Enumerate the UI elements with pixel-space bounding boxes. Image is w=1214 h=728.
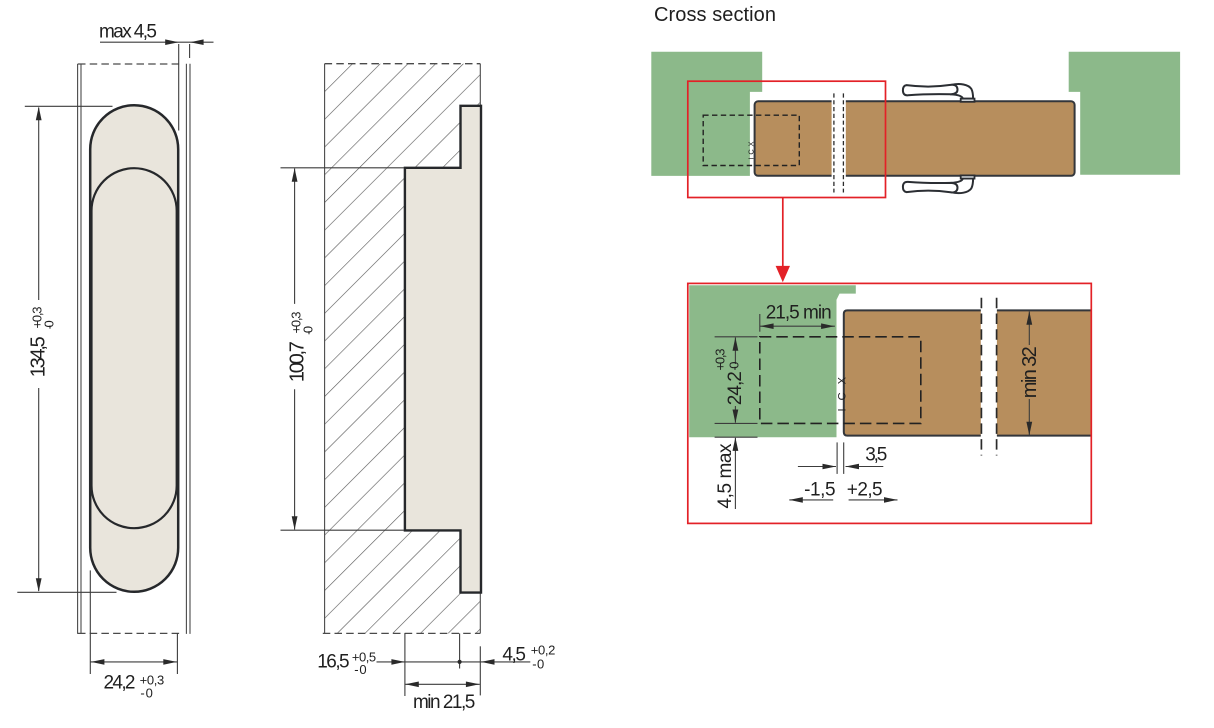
svg-text:-0: -0 xyxy=(301,326,316,335)
svg-text:Cross section: Cross section xyxy=(654,4,776,26)
svg-text:+2,5: +2,5 xyxy=(847,479,883,500)
svg-text:min 32: min 32 xyxy=(1019,346,1041,398)
svg-text:-0: -0 xyxy=(42,320,57,329)
svg-text:-0: -0 xyxy=(532,656,544,671)
svg-text:-0: -0 xyxy=(140,686,152,701)
svg-text:min 21,5: min 21,5 xyxy=(413,692,475,713)
svg-text:3,5: 3,5 xyxy=(865,444,887,465)
svg-text:134,5: 134,5 xyxy=(28,336,50,377)
svg-text:24,2: 24,2 xyxy=(104,673,136,694)
svg-text:+0,3: +0,3 xyxy=(713,349,728,371)
svg-text:24,2: 24,2 xyxy=(725,371,746,405)
svg-text:16,5: 16,5 xyxy=(317,652,349,673)
svg-text:max 4,5: max 4,5 xyxy=(99,22,157,43)
svg-text:-0: -0 xyxy=(727,362,742,371)
svg-text:4,5: 4,5 xyxy=(502,644,526,665)
svg-text:-1,5: -1,5 xyxy=(804,479,836,500)
svg-text:4,5 max: 4,5 max xyxy=(715,443,736,509)
svg-text:-0: -0 xyxy=(354,662,366,677)
svg-text:100,7: 100,7 xyxy=(287,341,309,382)
svg-text:+0,2: +0,2 xyxy=(531,643,556,658)
svg-text:21,5 min: 21,5 min xyxy=(766,302,832,323)
